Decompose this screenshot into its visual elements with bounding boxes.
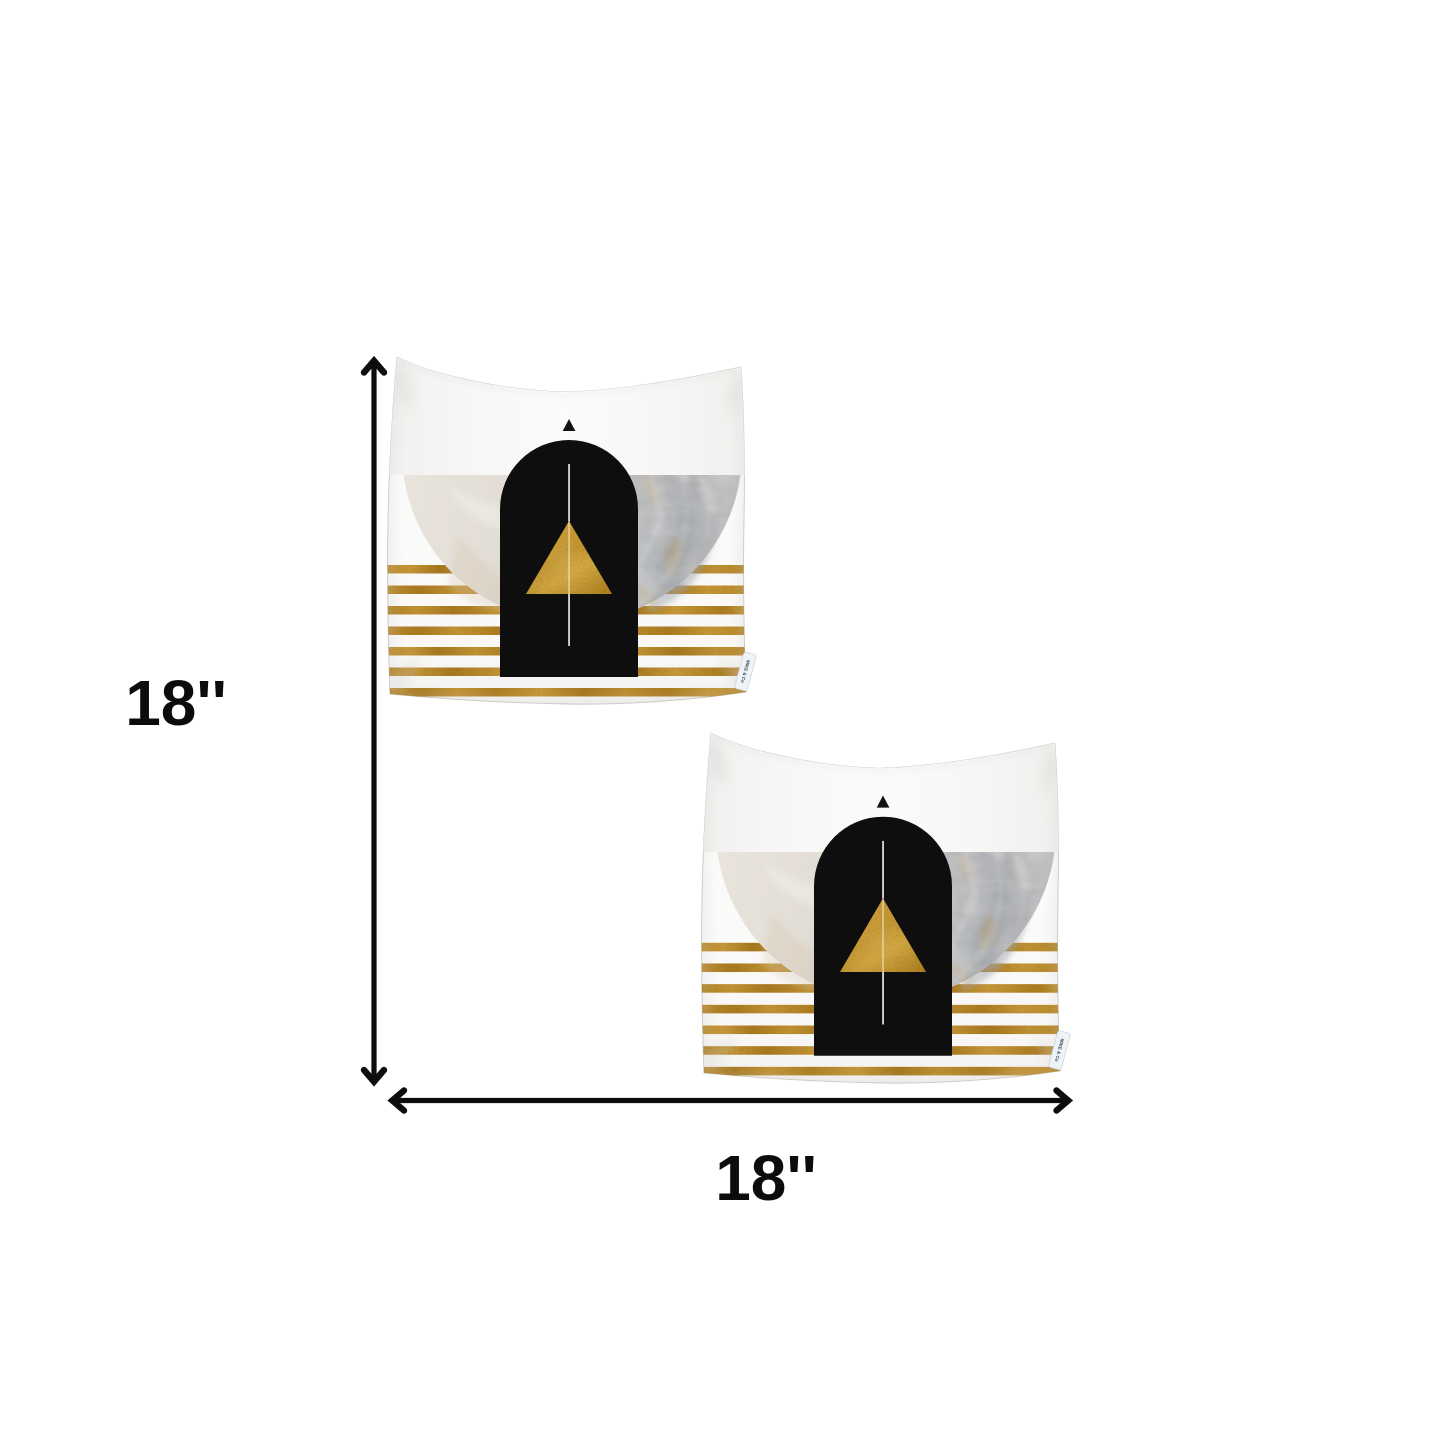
svg-text:18'': 18'' (125, 667, 227, 739)
svg-text:18'': 18'' (715, 1142, 817, 1214)
